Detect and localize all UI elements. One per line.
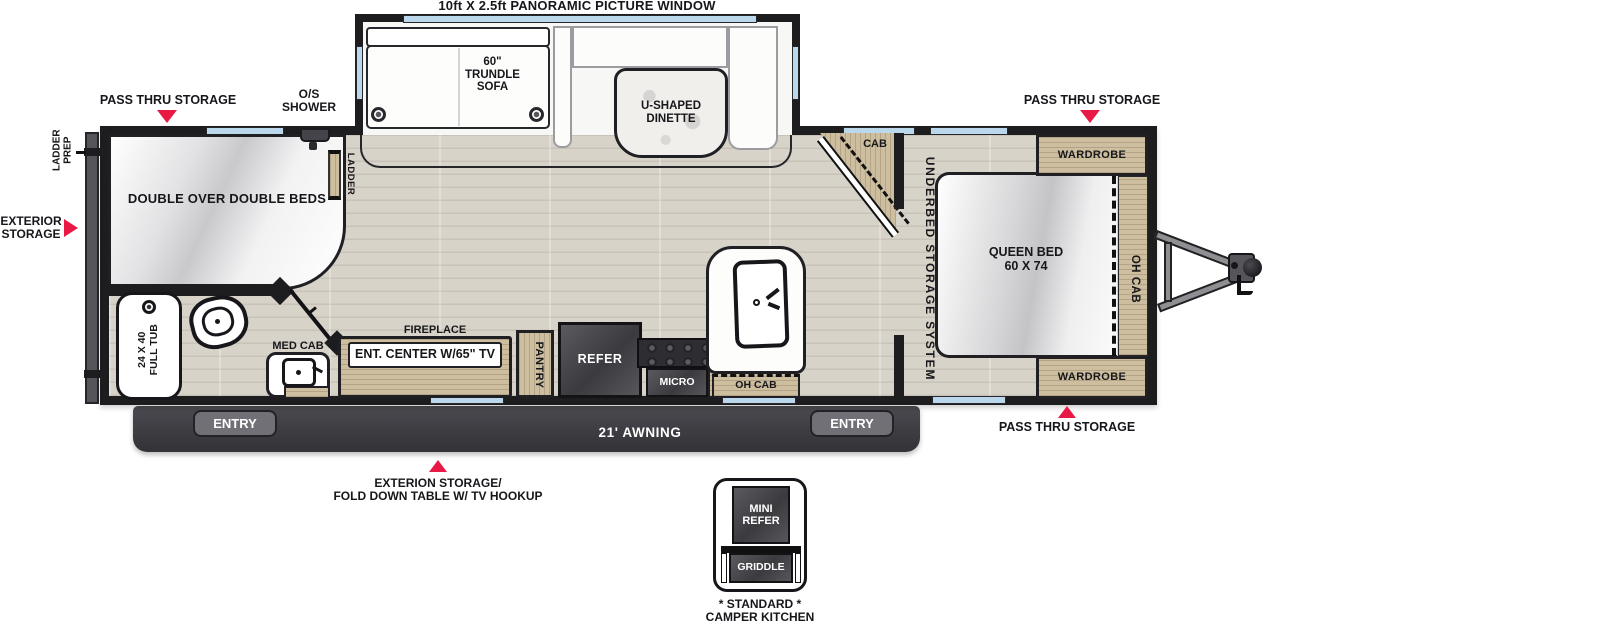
vanity-base [284,386,330,399]
pass-thru-top-left-label: PASS THRU STORAGE [98,94,238,108]
kitchen-sink [732,259,789,349]
fold-down-arrow [429,460,447,472]
dinette-bench-left [553,26,572,148]
wardrobe-bottom-label: WARDROBE [1058,371,1127,383]
pass-thru-top-left-arrow [157,110,177,123]
camper-kitchen-caption: * STANDARD * CAMPER KITCHEN [698,598,822,624]
ent-center-label: ENT. CENTER W/65" TV [355,348,495,362]
underbed-label: UNDERBED STORAGE SYSTEM [921,148,936,390]
awning-label: 21' AWNING [560,426,720,441]
wardrobe-top-label: WARDROBE [1058,149,1127,161]
entry-right-badge: ENTRY [810,410,894,437]
panoramic-window [403,15,757,23]
ladder-prep-tick [76,151,86,154]
os-shower-fixture [300,128,330,142]
entry-left-label: ENTRY [213,416,257,431]
med-cab-label: MED CAB [256,340,340,352]
griddle-mount-bar [721,546,801,553]
window-bottom-bedroom [932,396,1006,404]
refer-label: REFER [578,353,623,367]
griddle: GRIDDLE [729,553,793,583]
bunk-ladder [328,150,341,200]
hitch-ball [1243,258,1262,277]
cooktop [637,338,710,368]
dinette-label: U-SHAPED DINETTE [618,100,724,125]
pass-thru-bottom-right-label: PASS THRU STORAGE [997,421,1137,435]
entry-right-label: ENTRY [830,416,874,431]
vanity-faucet-dot [296,370,301,375]
bedroom-wall-bottom [894,335,904,399]
window-top-bedroom [930,127,1008,135]
sofa-label: 60" TRUNDLE SOFA [430,56,555,94]
panoramic-window-title: 10ft X 2.5ft PANORAMIC PICTURE WINDOW [437,0,717,13]
mini-refer-label: MINI REFER [742,503,779,527]
bunk-ladder-label: LADDER [342,150,355,198]
griddle-rail-left [721,553,727,583]
slideout-window-left [356,46,363,100]
bedroom-wall-top [894,133,904,209]
sofa-back [366,27,550,47]
exterior-storage-label: EXTERIOR STORAGE [0,215,62,241]
micro-label: MICRO [660,377,695,389]
corner-cab-label: CAB [855,138,895,150]
floorplan-canvas: ENTRY ENTRY 21' AWNING 60" TRUNDLE SOFA … [0,0,1600,626]
queen-bed-label: QUEEN BED 60 X 74 [951,246,1101,274]
slideout-window-right [792,46,799,100]
os-shower-nub [309,142,317,150]
ladder-prep-label: LADDER PREP [52,129,74,171]
pass-thru-bottom-right-arrow [1058,406,1076,418]
oh-cab-front-dash [1112,176,1116,356]
jack-handle-horiz [1237,291,1253,295]
tub-label: 24 X 40 FULL TUB [137,324,161,375]
tv-band: ENT. CENTER W/65" TV [348,342,502,368]
hitch-crossmember [1164,242,1172,302]
sofa-armrest-right [529,107,544,122]
griddle-rail-right [795,553,801,583]
wardrobe-top: WARDROBE [1036,134,1148,176]
wardrobe-bottom: WARDROBE [1036,356,1148,399]
double-bunk-beds [108,134,346,290]
ladder-prep-wrap: LADDER PREP [46,122,80,178]
tub-label-wrap: 24 X 40 FULL TUB [116,300,182,400]
fold-down-label: EXTERION STORAGE/ FOLD DOWN TABLE W/ TV … [328,477,548,503]
oh-cab-front-label: OH CAB [1127,236,1141,322]
refrigerator: REFER [558,322,642,398]
griddle-label: GRIDDLE [737,562,784,574]
dinette-bench-top [572,26,728,68]
bunk-beds-label: DOUBLE OVER DOUBLE BEDS [118,192,336,206]
coupler-pin [1231,262,1238,269]
dinette-bench-right [728,26,778,150]
sofa-armrest-left [371,107,386,122]
os-shower-label: O/S SHOWER [278,88,340,114]
toilet-drain-dot [215,319,220,324]
sink-faucet-dot [753,299,760,306]
pass-thru-top-right-label: PASS THRU STORAGE [1022,94,1162,108]
exterior-storage-arrow [64,219,78,237]
oh-cab-kitchen-label: OH CAB [712,380,800,392]
rear-bumper [85,132,99,404]
pantry-label: PANTRY [531,336,545,394]
fireplace-label: FIREPLACE [390,324,480,336]
microwave: MICRO [646,368,708,397]
entry-left-badge: ENTRY [193,410,277,437]
mini-refer: MINI REFER [732,486,790,544]
pass-thru-top-right-arrow [1080,110,1100,123]
